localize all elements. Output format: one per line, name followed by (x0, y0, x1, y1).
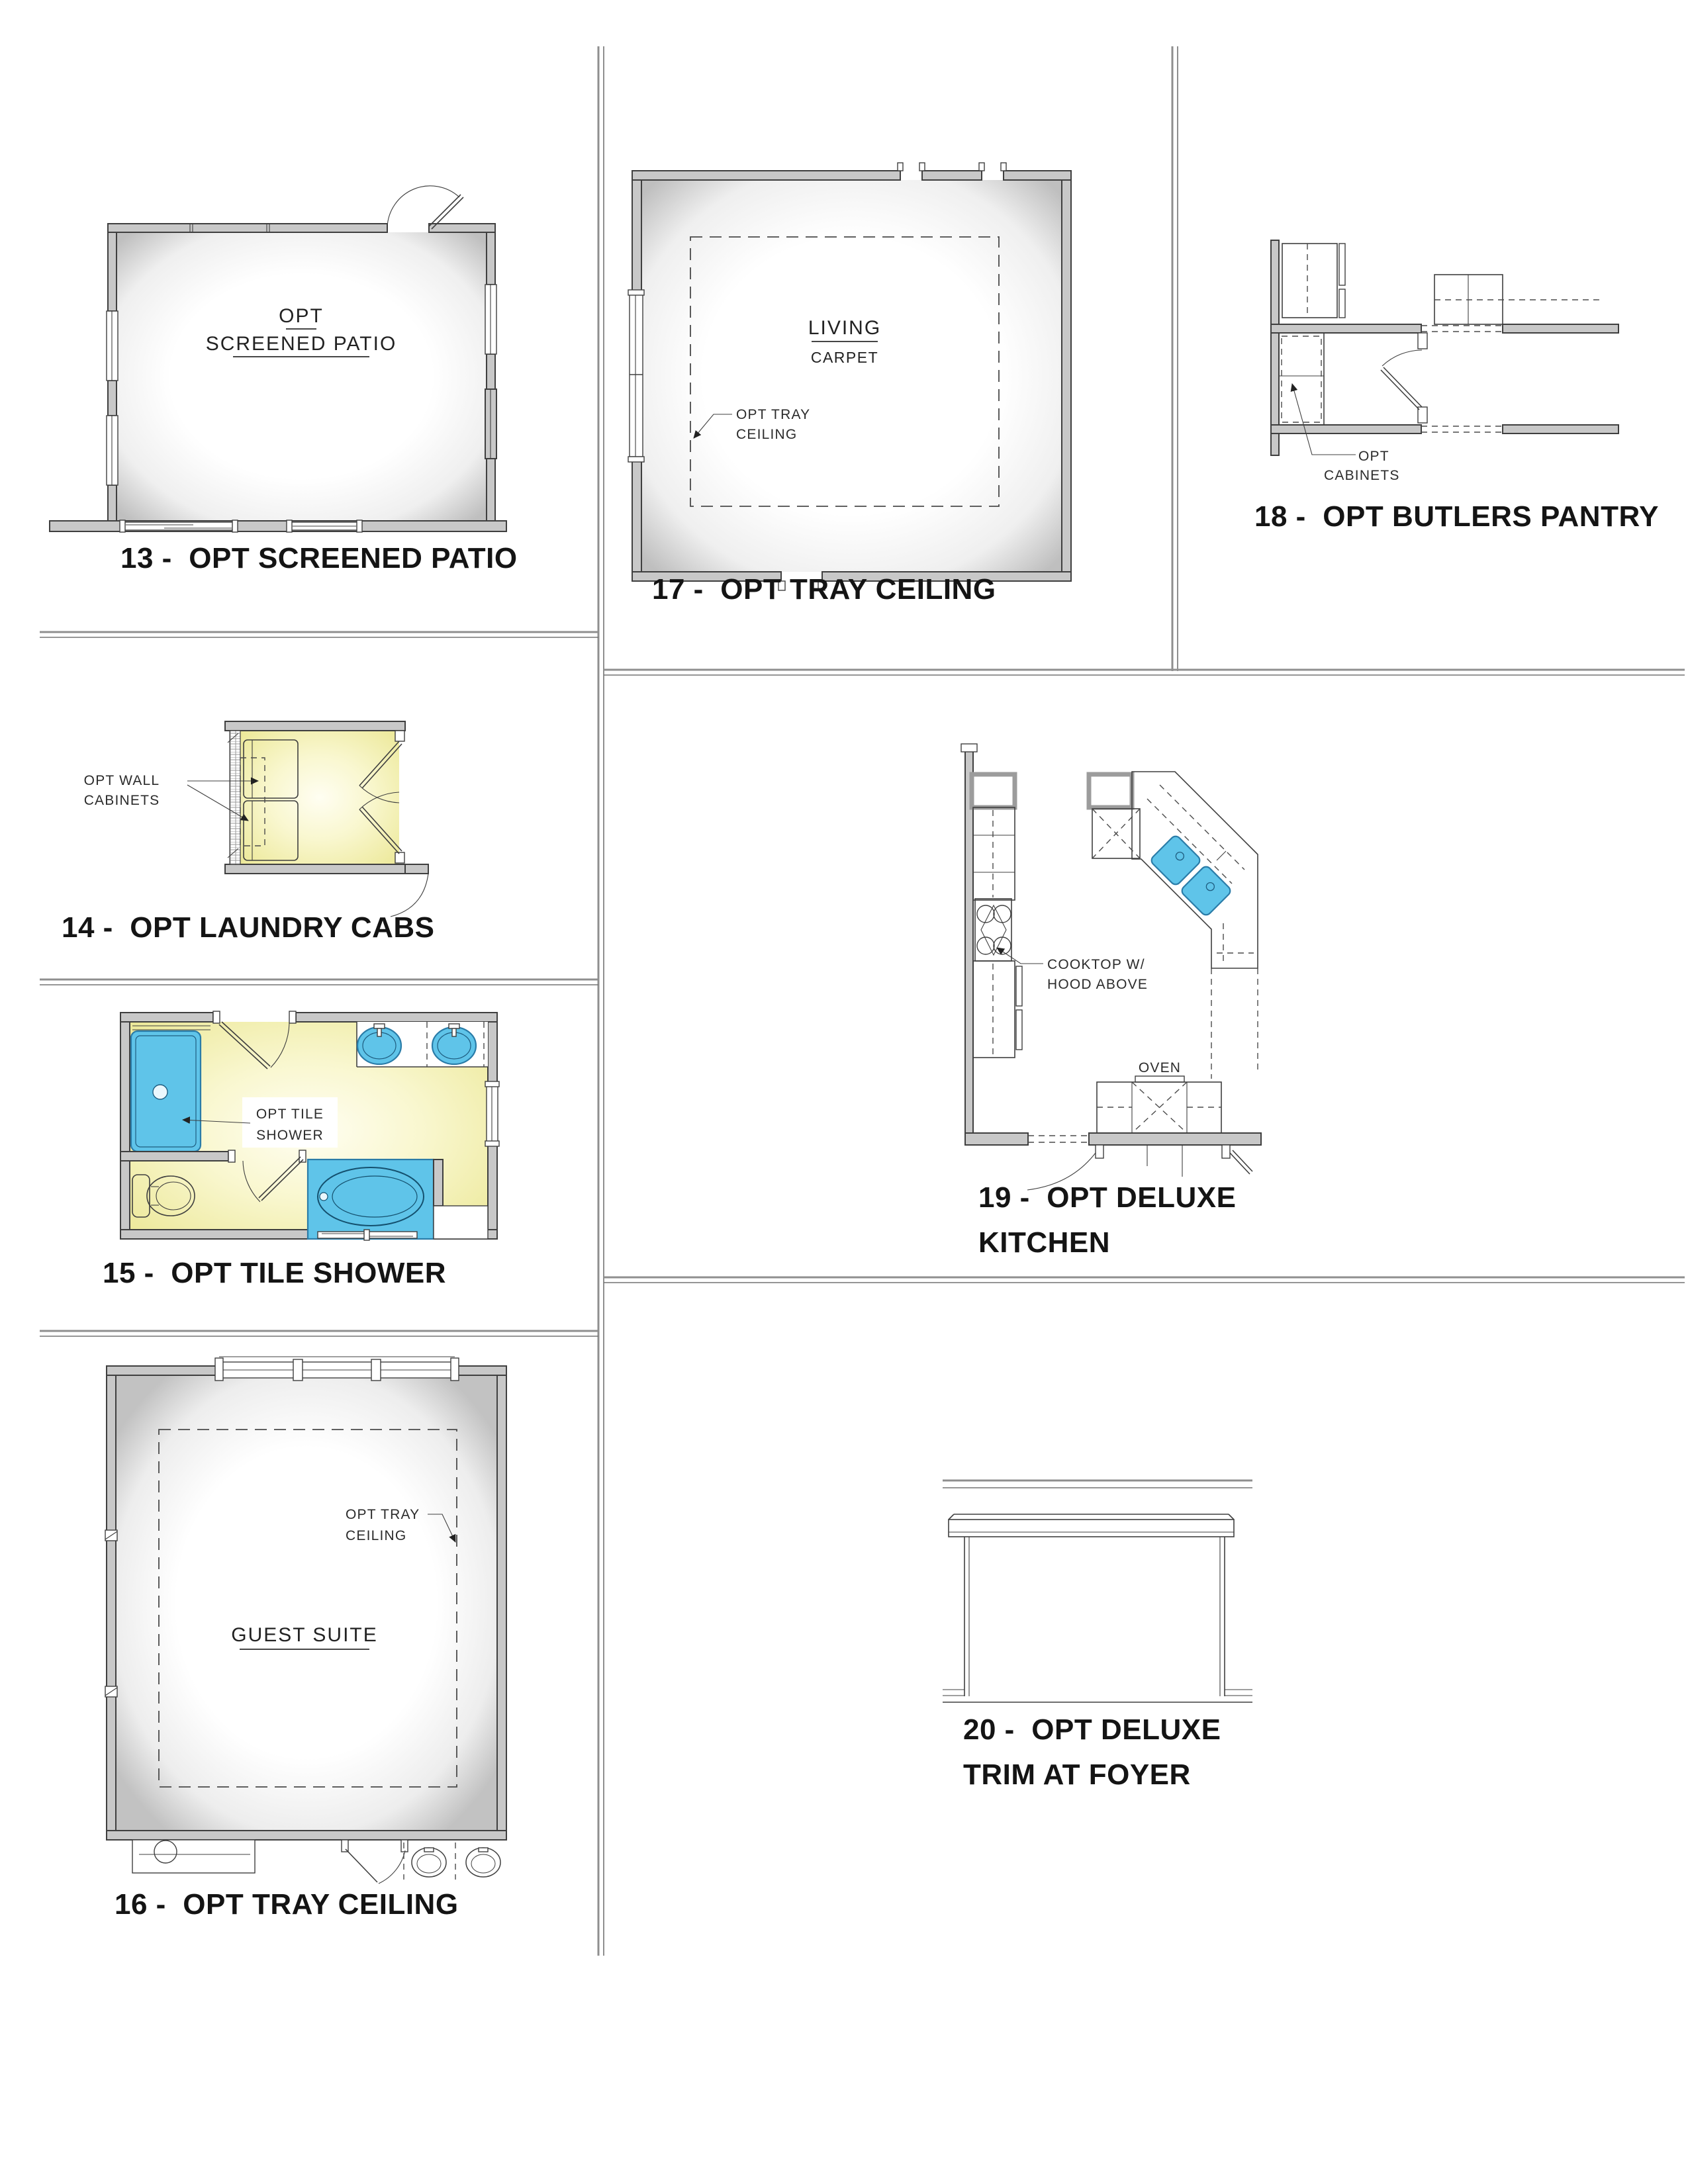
slider-door (120, 520, 238, 532)
vanity (357, 1022, 488, 1067)
cooktop-note-1: COOKTOP W/ (1047, 957, 1145, 972)
panel-18-opt-butlers-pantry: OPT CABINETS 18 - OPT BUTLERS PANTRY (1254, 240, 1659, 533)
cabinets-note-2: CABINETS (1324, 468, 1400, 483)
panel-16-opt-tray-ceiling: OPT TRAY CEILING GUEST SUITE 16 - OPT TR… (105, 1357, 506, 1921)
cooktop-note-2: HOOD ABOVE (1047, 977, 1148, 992)
floorplan-options-sheet: OPT SCREENED PATIO 13 - OPT SCREENED PAT… (0, 0, 1688, 2184)
room-label-2: SCREENED PATIO (206, 333, 397, 355)
door-swing (391, 874, 428, 917)
tray-note-1: OPT TRAY (346, 1507, 420, 1522)
panel-15-opt-tile-shower: OPT TILE SHOWER (103, 1011, 499, 1289)
panel-17-opt-tray-ceiling: LIVING CARPET OPT TRAY CEILING 17 - OPT … (628, 163, 1071, 606)
panel-13-opt-screened-patio: OPT SCREENED PATIO 13 - OPT SCREENED PAT… (50, 186, 518, 574)
slider-window (287, 520, 362, 532)
shower-note-2: SHOWER (256, 1128, 324, 1143)
tray-note-2: CEILING (736, 427, 797, 442)
panel-14-caption: 14 - OPT LAUNDRY CABS (62, 911, 435, 944)
tray-note-1: OPT TRAY (736, 407, 810, 422)
panel-13-caption: 13 - OPT SCREENED PATIO (120, 542, 518, 574)
wall-cabs-note-2: CABINETS (84, 793, 160, 808)
island-counter (1089, 772, 1258, 1079)
cabinets-note-1: OPT (1358, 449, 1389, 464)
opt-cabinets-outline (1282, 336, 1321, 422)
panel-16-caption: 16 - OPT TRAY CEILING (115, 1888, 459, 1921)
guest-window (215, 1357, 459, 1381)
panel-19-opt-deluxe-kitchen: COOKTOP W/ HOOD ABOVE (961, 744, 1261, 1259)
room-label: LIVING (808, 317, 881, 339)
cooktop (975, 899, 1011, 961)
floor-label: CARPET (811, 349, 878, 366)
oven-cabinet: OVEN (1097, 1060, 1221, 1133)
options-drawing: OPT SCREENED PATIO 13 - OPT SCREENED PAT… (0, 0, 1688, 2184)
wall-cabs-note-1: OPT WALL (84, 773, 160, 788)
panel-19-caption-2: KITCHEN (978, 1226, 1110, 1259)
panel-18-caption: 18 - OPT BUTLERS PANTRY (1254, 500, 1659, 533)
room-label: OPT (279, 305, 324, 327)
panel-20-opt-deluxe-trim: 20 - OPT DELUXE TRIM AT FOYER (943, 1480, 1252, 1791)
patio-door (387, 186, 463, 229)
panel-14-opt-laundry-cabs: OPT WALL CABINETS 14 - OPT LAUNDRY CABS (62, 721, 435, 944)
oven-label: OVEN (1139, 1060, 1181, 1075)
panel-20-caption-1: 20 - OPT DELUXE (963, 1713, 1221, 1746)
living-window (628, 290, 644, 462)
cased-opening-trim (943, 1514, 1252, 1702)
panel-15-caption: 15 - OPT TILE SHOWER (103, 1257, 446, 1289)
panel-17-caption: 17 - OPT TRAY CEILING (652, 573, 996, 606)
lower-floor-fixtures (132, 1840, 500, 1884)
shower-note-1: OPT TILE (256, 1107, 324, 1122)
room-label: GUEST SUITE (231, 1624, 377, 1646)
tray-note-2: CEILING (346, 1528, 406, 1543)
panel-20-caption-2: TRIM AT FOYER (963, 1758, 1191, 1791)
tile-shower (131, 1031, 201, 1152)
pantry-door (1381, 350, 1422, 410)
panel-19-caption-1: 19 - OPT DELUXE (978, 1181, 1236, 1214)
